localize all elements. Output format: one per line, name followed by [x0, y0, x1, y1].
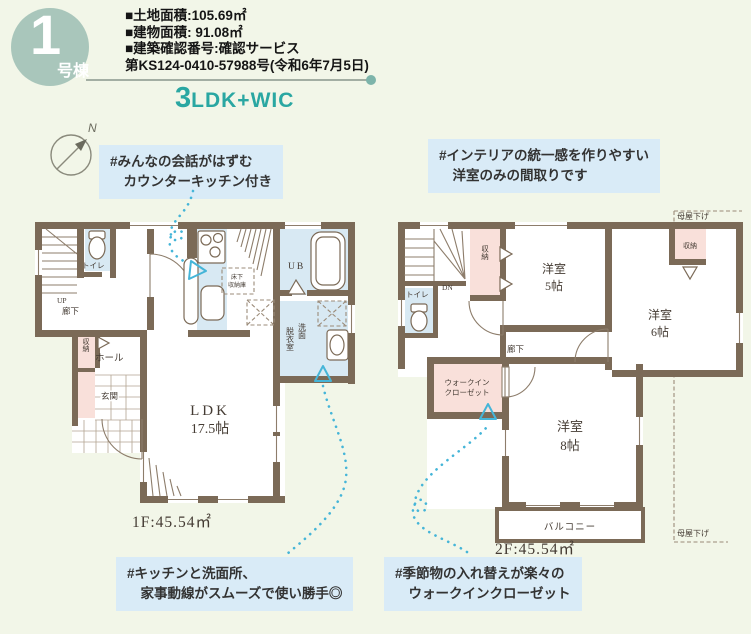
building-number-badge: 1 号棟 — [11, 8, 89, 86]
building-suffix: 号棟 — [57, 57, 89, 81]
label-hallway-1f: 廊下 — [62, 306, 80, 316]
label-room5-size: 5帖 — [545, 278, 563, 293]
confirmation-number-1: ■建築確認番号:確認サービス — [125, 41, 369, 58]
floor1-area-label: 1F:45.54㎡ — [132, 510, 212, 532]
label-entrance: 玄関 — [101, 391, 118, 401]
label-eaves-bottom: 母屋下げ — [677, 529, 709, 538]
toilet-bowl-icon — [89, 237, 105, 259]
callout-line: #キッチンと洗面所、 — [127, 564, 342, 584]
label-wic-2: クローゼット — [445, 387, 490, 397]
plan-type-number: 3 — [175, 82, 191, 114]
floorplan-2f: DN トイレ 収納 洋室 5帖 洋室 6帖 収納 廊下 ウォークイン クローゼッ… — [398, 205, 748, 555]
fixtures-2f — [411, 304, 427, 331]
header-divider-dot — [366, 75, 376, 85]
callout-line: #みんなの会話がはずむ — [110, 152, 272, 172]
label-dn: DN — [442, 283, 453, 292]
callout-line: 家事動線がスムーズで使い勝手◎ — [127, 584, 342, 604]
label-room8: 洋室 — [557, 419, 583, 434]
label-room6-size: 6帖 — [651, 324, 669, 339]
label-toilet-1f: トイレ — [82, 261, 105, 270]
label-toilet-2f: トイレ — [406, 290, 429, 299]
label-underfloor-1: 床下 — [231, 273, 243, 281]
callout-counter-kitchen: #みんなの会話がはずむ カウンターキッチン付き — [99, 145, 283, 199]
label-storage-a: 収納 — [480, 245, 489, 261]
floor2-area-label: 2F:45.54㎡ — [495, 537, 575, 559]
label-ldk-size: 17.5帖 — [191, 421, 230, 437]
label-hallway-2f: 廊下 — [507, 344, 525, 354]
label-up: UP — [57, 296, 67, 305]
label-balcony: バルコニー — [544, 522, 596, 533]
label-room8-size: 8帖 — [560, 438, 580, 453]
land-area: ■土地面積:105.69㎡ — [125, 8, 369, 25]
label-dressing: 脱衣室 — [286, 326, 295, 351]
floorplan-1f: トイレ UP 廊下 収納 ホール 玄関 UB 床下 収納庫 洗面 脱衣室 LDK… — [35, 220, 357, 512]
label-wic-1: ウォークイン — [445, 378, 490, 387]
toilet-bowl-icon-2f — [411, 311, 427, 331]
label-storage-b: 収納 — [683, 241, 697, 250]
callout-interior: #インテリアの統一感を作りやすい 洋室のみの間取りです — [428, 139, 660, 193]
kitchen-sink-icon — [201, 286, 224, 320]
label-hall: ホール — [95, 353, 124, 364]
label-room6: 洋室 — [648, 307, 672, 322]
label-room5: 洋室 — [542, 261, 566, 276]
counter-front — [184, 258, 198, 324]
label-ldk: LDK — [190, 403, 230, 419]
label-underfloor-2: 収納庫 — [228, 281, 246, 289]
compass-north-label: N — [88, 121, 97, 135]
floorplan-sheet: 1 号棟 ■土地面積:105.69㎡ ■建物面積: 91.08㎡ ■建築確認番号… — [0, 0, 751, 634]
callout-line: #季節物の入れ替えが楽々の — [395, 564, 571, 584]
callout-housework-flow: #キッチンと洗面所、 家事動線がスムーズで使い勝手◎ — [116, 557, 353, 611]
storage-a-floor — [470, 229, 500, 295]
callout-line: 洋室のみの間取りです — [439, 166, 649, 186]
callout-line: カウンターキッチン付き — [110, 172, 272, 192]
label-wash: 洗面 — [298, 322, 307, 340]
label-eaves-top: 母屋下げ — [677, 212, 709, 221]
callout-walk-in-closet: #季節物の入れ替えが楽々の ウォークインクローゼット — [384, 557, 582, 611]
confirmation-number-2: 第KS124-0410-57988号(令和6年7月5日) — [125, 58, 369, 75]
callout-line: #インテリアの統一感を作りやすい — [439, 146, 649, 166]
property-facts: ■土地面積:105.69㎡ ■建物面積: 91.08㎡ ■建築確認番号:確認サー… — [125, 8, 369, 74]
plan-type-rest: LDK+WIC — [191, 89, 294, 112]
header-divider-line — [86, 79, 370, 81]
label-ub: UB — [288, 262, 305, 272]
plan-type-label: 3LDK+WIC — [175, 82, 294, 115]
building-area: ■建物面積: 91.08㎡ — [125, 25, 369, 42]
shoe-cabinet — [78, 372, 95, 418]
label-storage-1f: 収納 — [82, 338, 90, 353]
callout-line: ウォークインクローゼット — [395, 584, 571, 604]
